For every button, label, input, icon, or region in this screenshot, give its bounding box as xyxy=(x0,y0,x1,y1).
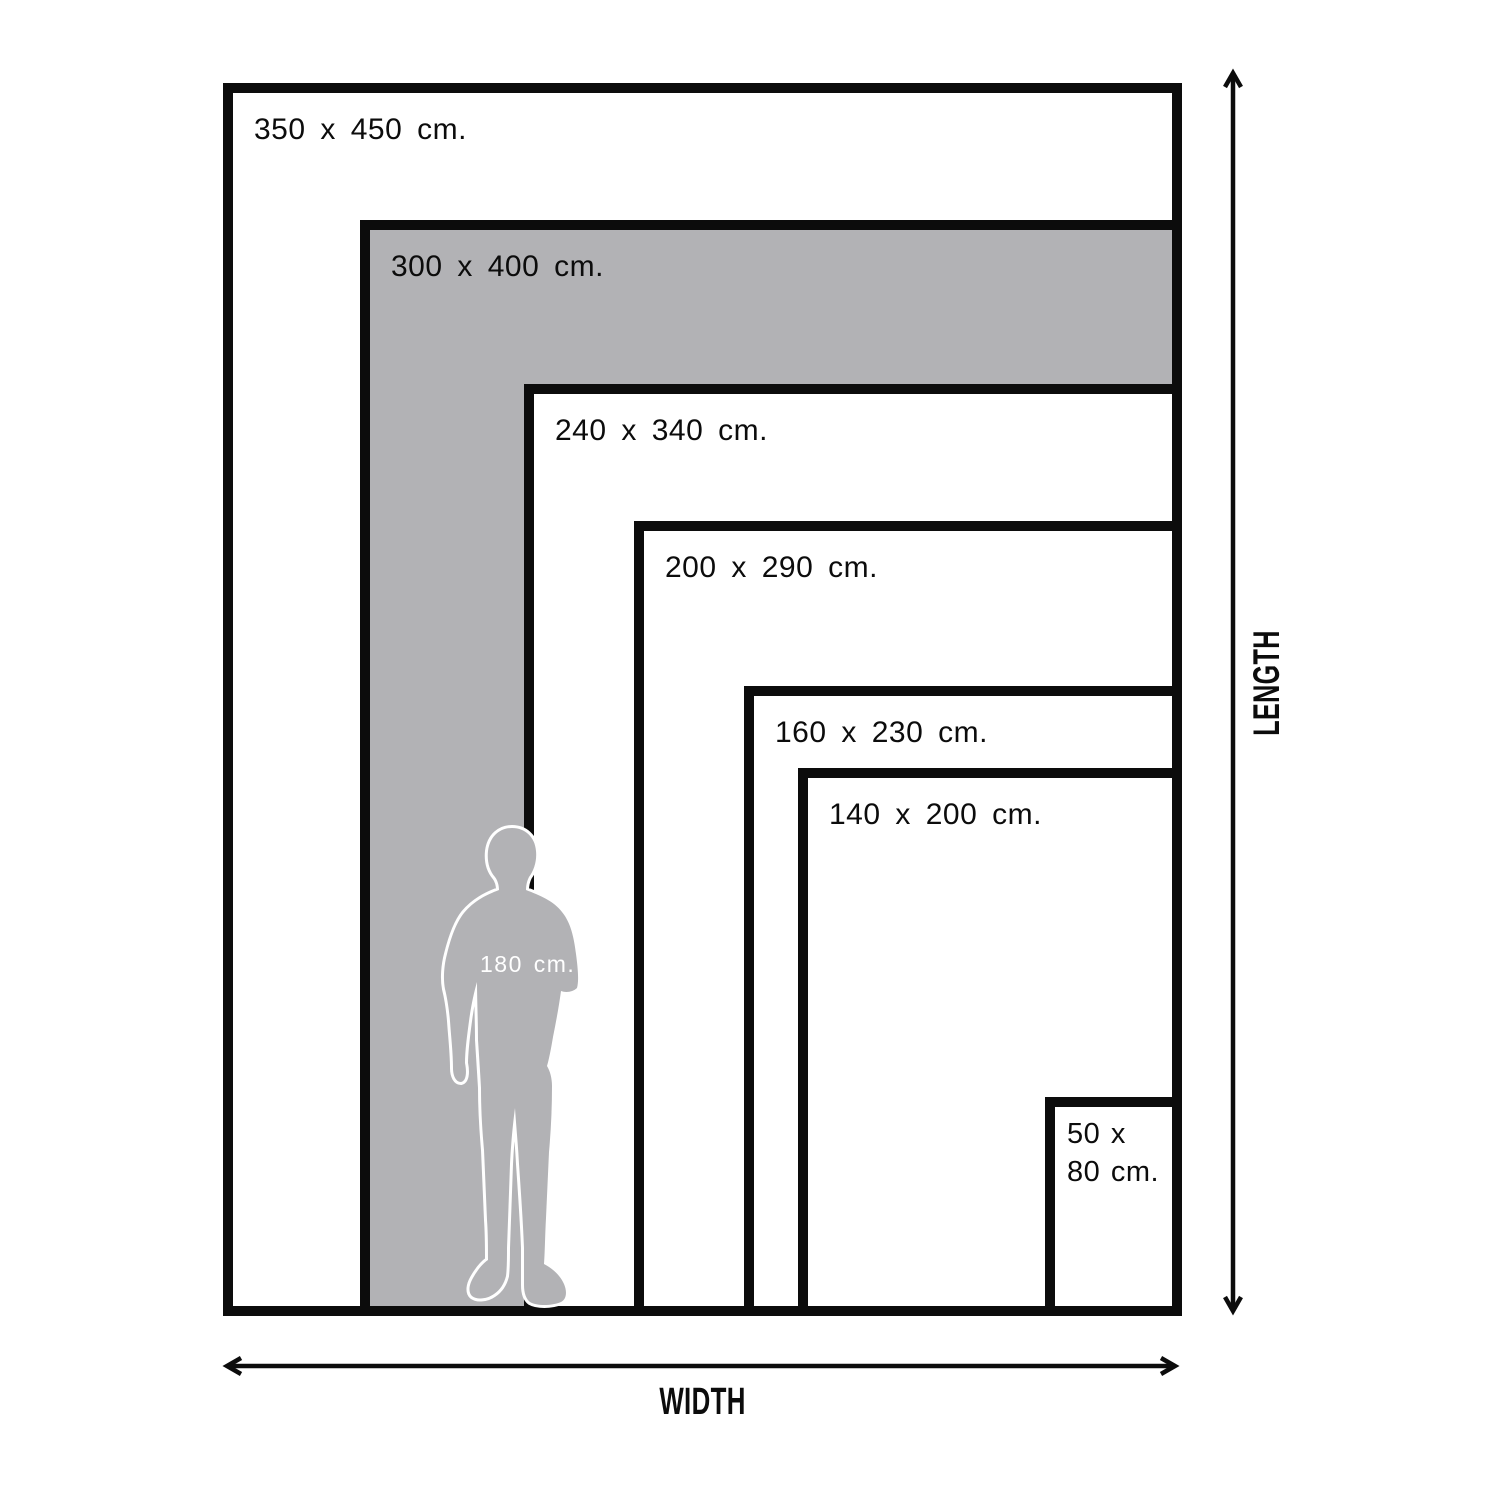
width-axis-arrow xyxy=(220,1355,1182,1377)
size-label: 160 x 230 cm. xyxy=(754,696,1172,769)
width-axis-label: WIDTH xyxy=(659,1381,745,1424)
person-height-label: 180 cm. xyxy=(480,951,575,977)
person-silhouette: 180 cm. xyxy=(424,820,596,1326)
size-rect-50x80: 50 x 80 cm. xyxy=(1045,1097,1182,1316)
size-label: 140 x 200 cm. xyxy=(808,778,1172,851)
rug-size-comparison-diagram: 350 x 450 cm.300 x 400 cm.240 x 340 cm.2… xyxy=(0,0,1500,1500)
size-label: 200 x 290 cm. xyxy=(644,531,1172,604)
person-silhouette-shape xyxy=(444,828,578,1305)
size-label: 50 x 80 cm. xyxy=(1055,1107,1172,1200)
length-axis-label: LENGTH xyxy=(1246,630,1288,735)
size-label: 350 x 450 cm. xyxy=(233,93,1172,166)
width-axis-label-wrap: WIDTH xyxy=(223,1381,1182,1424)
size-label: 240 x 340 cm. xyxy=(534,394,1172,467)
length-axis-arrow xyxy=(1222,66,1244,1318)
size-label: 300 x 400 cm. xyxy=(370,230,1172,303)
